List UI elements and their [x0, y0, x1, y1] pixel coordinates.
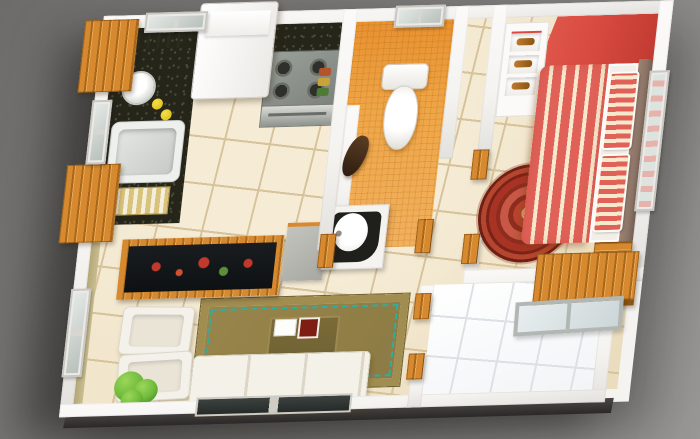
sink-basin: [114, 128, 177, 176]
balcony-door-jamb-top: [413, 293, 432, 320]
bedroom-door-jamb-bottom: [461, 234, 480, 265]
window-glass: [90, 104, 108, 161]
tv-cabinet: [116, 235, 285, 300]
refrigerator-lid: [204, 10, 271, 36]
apartment-floor-plan: [59, 0, 674, 417]
kitchen-window-top: [144, 11, 208, 33]
shelf-niche: [507, 55, 539, 74]
window-glass: [148, 15, 203, 29]
upper-cabinet-corner: [77, 19, 139, 93]
tv-screen: [124, 242, 277, 292]
window-glass: [398, 9, 442, 24]
coffee-table-paper: [273, 319, 297, 337]
utensil-rack: [136, 32, 182, 49]
shelf-decor: [511, 82, 530, 90]
shelf-decor: [514, 60, 533, 68]
scene: [0, 0, 700, 439]
shelf-niche: [510, 31, 542, 52]
oven-front: [259, 104, 335, 128]
bathroom-window: [394, 4, 446, 27]
shelf-niche: [505, 77, 537, 96]
upper-cabinet-left: [59, 164, 122, 244]
armchair-seat: [128, 314, 184, 346]
shelf-decor: [516, 38, 535, 46]
balcony-door-jamb-bottom: [406, 353, 425, 380]
coffee-table-tray: [297, 317, 320, 339]
armchair: [117, 306, 196, 355]
bedroom-door-jamb-top: [470, 149, 489, 180]
bedroom-balcony-window: [513, 296, 624, 337]
